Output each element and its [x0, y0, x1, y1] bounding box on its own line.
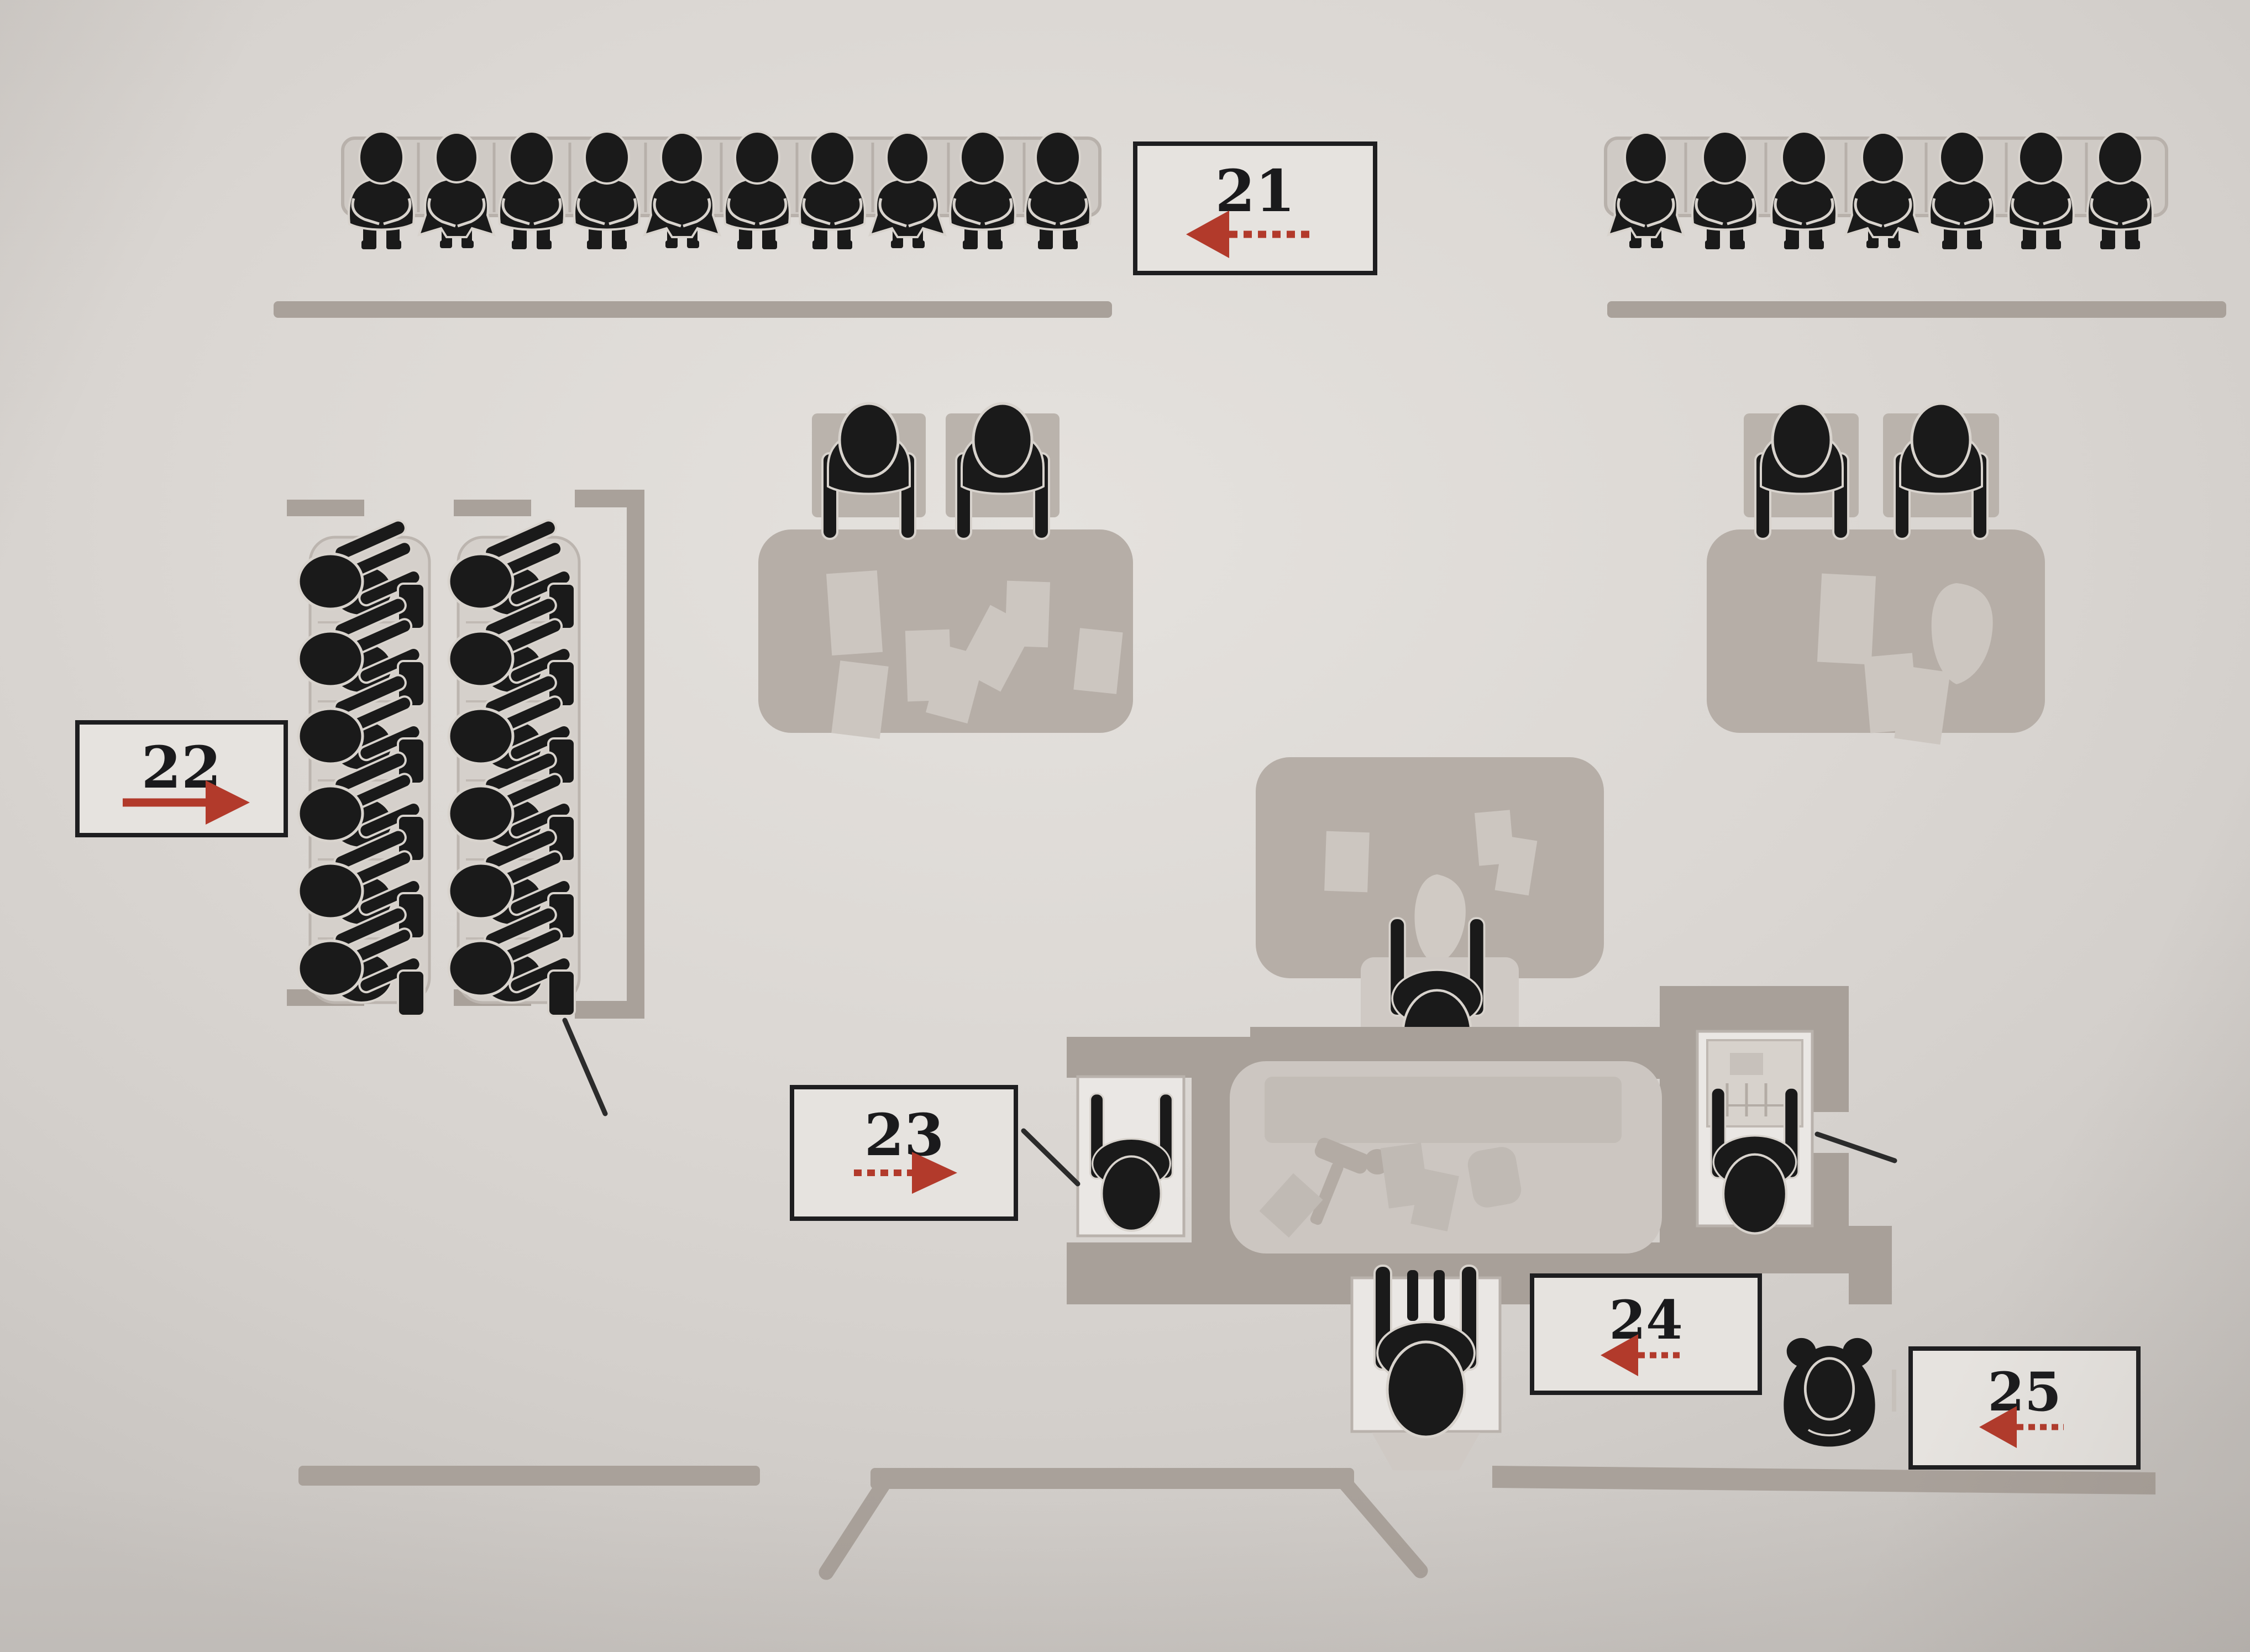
jury-wall-segment — [287, 500, 364, 516]
courtroom-diagram-page: 21 22 — [0, 0, 2250, 1652]
door-jamb-left — [826, 1485, 883, 1572]
label-box-24: 24 — [1532, 1276, 1760, 1393]
counsel-right-people — [1755, 403, 1987, 539]
witness-stand-wall — [1660, 986, 1849, 1034]
leader-line-clerk — [1024, 1131, 1078, 1184]
witness-stand-wall — [1811, 1153, 1849, 1227]
doorway-lintel — [870, 1468, 1354, 1489]
jury-box-railing — [575, 490, 644, 1019]
door-jamb-right — [1346, 1485, 1420, 1571]
bailiff-figure — [1784, 1338, 1875, 1446]
counsel-left-people — [822, 403, 1049, 539]
bench-structure — [1849, 1226, 1892, 1304]
jury-wall-segment — [454, 500, 531, 516]
wall-segment — [298, 1466, 760, 1486]
courtroom-floor-plan: 21 22 — [0, 0, 2250, 1652]
bar-railing-left — [274, 301, 1112, 318]
bar-railing-right — [1607, 301, 2226, 318]
label-box-22: 22 — [77, 722, 286, 835]
judge-desk-blotter — [1265, 1077, 1622, 1143]
label-23-number: 23 — [864, 1101, 945, 1169]
counsel-table-left — [758, 413, 1133, 739]
label-box-23: 23 — [792, 1087, 1016, 1219]
leader-line-jury — [565, 1020, 605, 1114]
label-24-number: 24 — [1609, 1289, 1683, 1351]
label-25-number: 25 — [1987, 1361, 2062, 1423]
label-box-21: 21 — [1135, 144, 1375, 273]
witness-stand-wall — [1811, 1034, 1849, 1112]
label-box-25: 25 — [1911, 1349, 2138, 1467]
small-wall-mark — [1892, 1370, 1896, 1412]
bottom-wall — [298, 1466, 2155, 1572]
wall-segment — [1492, 1466, 2155, 1494]
